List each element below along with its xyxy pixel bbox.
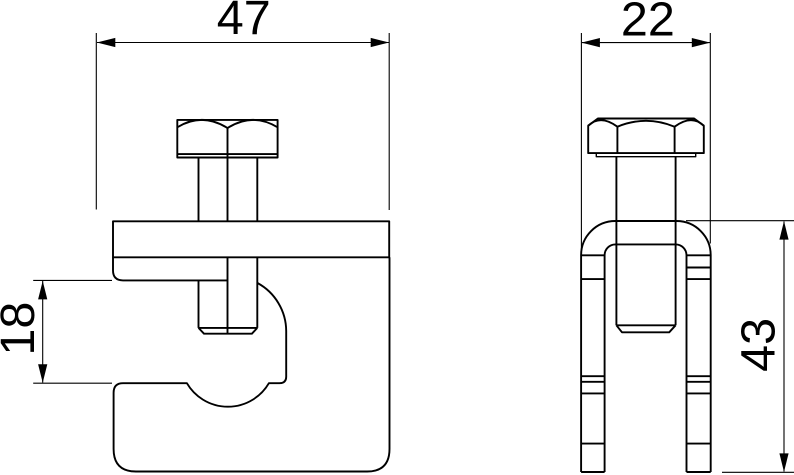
svg-text:47: 47 <box>217 0 271 45</box>
svg-text:22: 22 <box>621 0 675 47</box>
svg-text:43: 43 <box>732 318 786 372</box>
svg-text:18: 18 <box>0 302 45 356</box>
